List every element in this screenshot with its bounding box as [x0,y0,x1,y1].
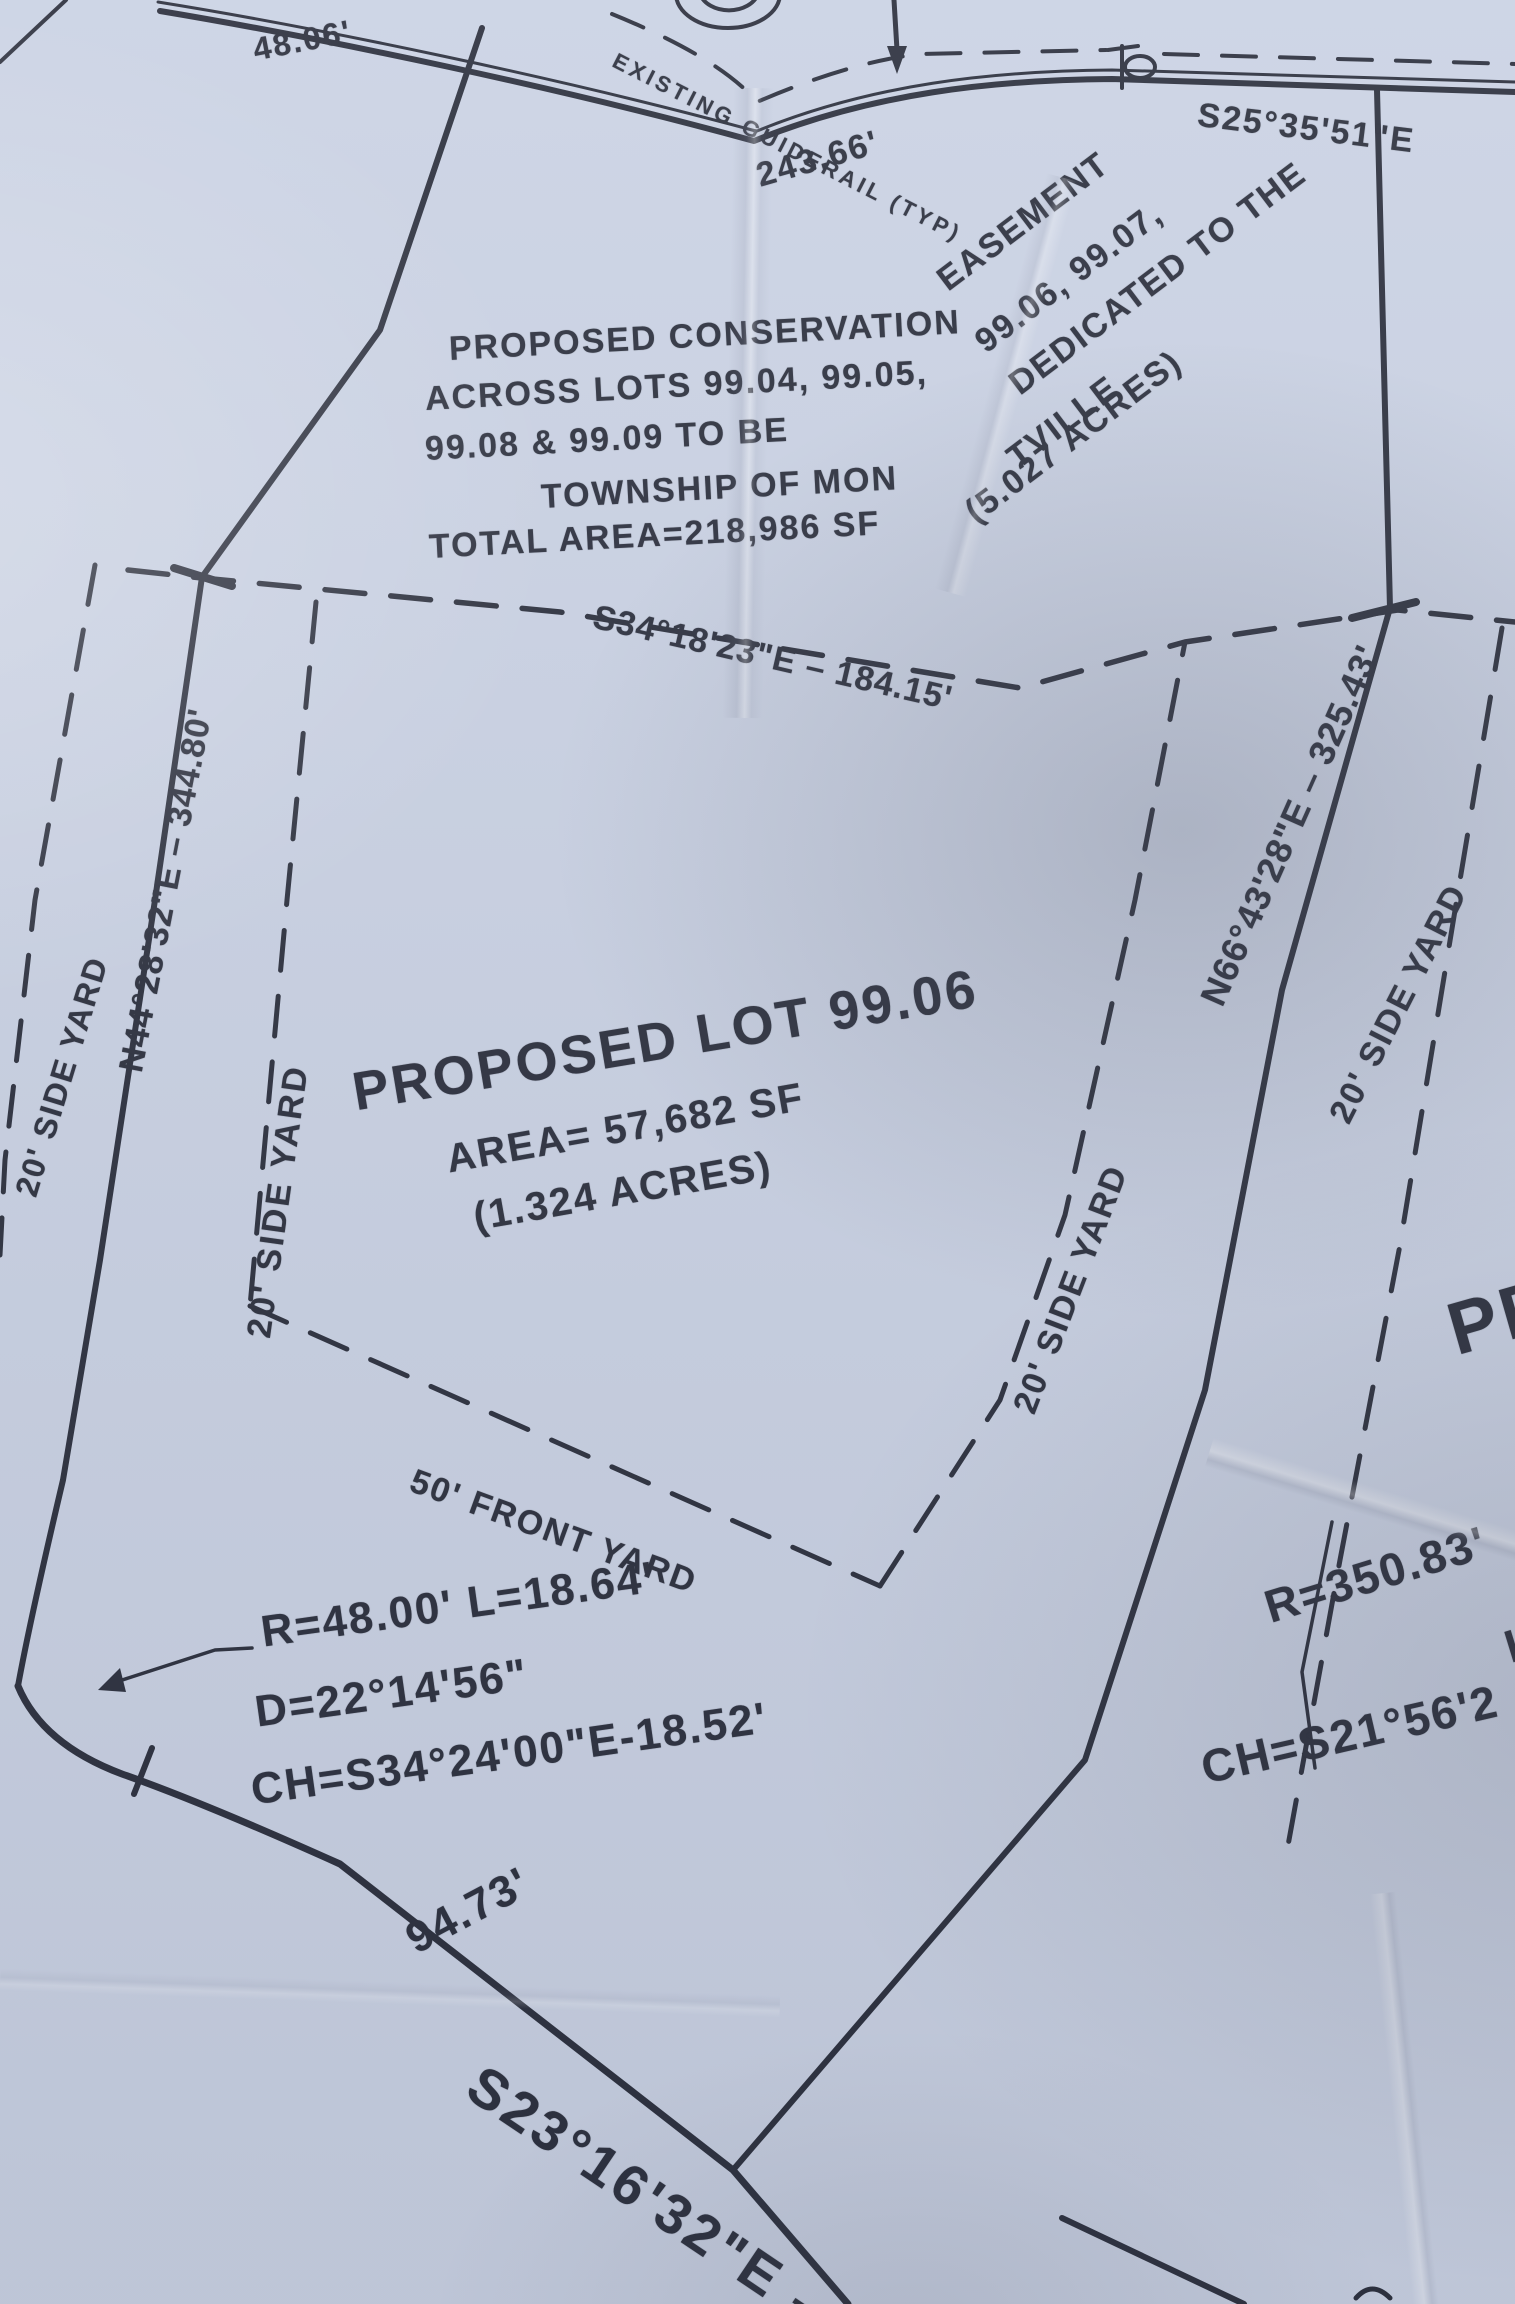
west-property-line [18,28,482,1686]
plat-photo: 48.06' EXISTING GUIDERAIL (TYP) 243.66' … [0,0,1515,2304]
secondary-road-edge [1062,2218,1244,2304]
monument-symbol-loop [1125,56,1155,78]
corner-line-top-left [0,0,66,62]
curve-leader-arrowhead [98,1668,126,1692]
curve-leader-line [116,1648,252,1682]
culdesac-arcs [676,0,780,28]
down-arrow-line [894,0,897,50]
setback-right-dashed [880,642,1185,1586]
partial-letter-mark [1356,2289,1390,2298]
